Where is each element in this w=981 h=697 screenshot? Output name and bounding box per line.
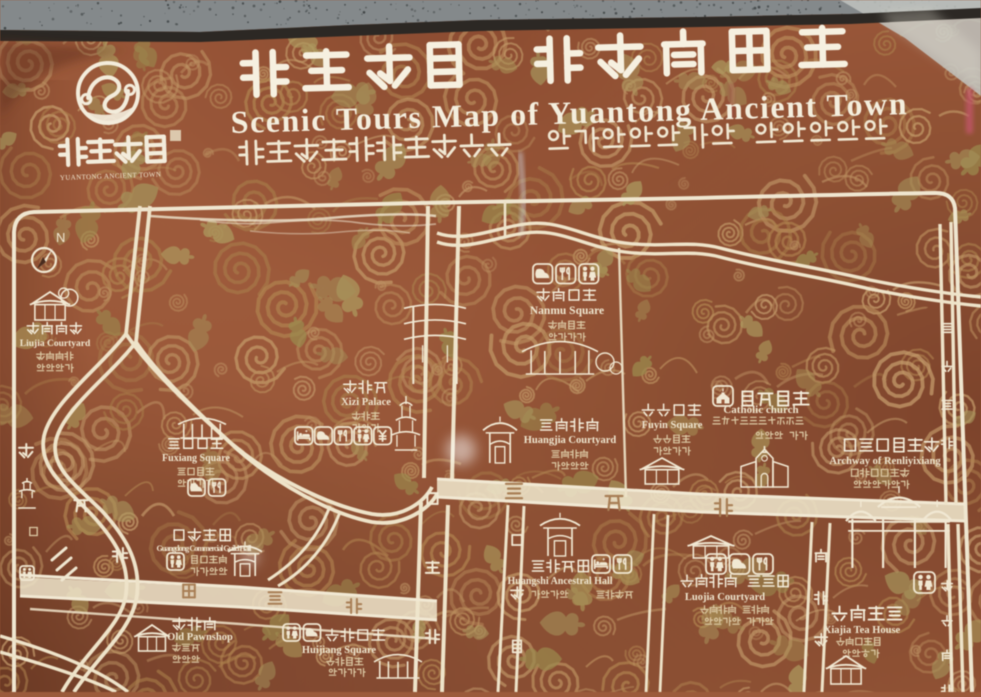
svg-text:Fuxiang Square: Fuxiang Square — [162, 453, 230, 464]
svg-text:Liujia Courtyard: Liujia Courtyard — [20, 339, 91, 349]
svg-text:Xizi Palace: Xizi Palace — [341, 397, 391, 408]
svg-text:Huangjia Courtyard: Huangjia Courtyard — [524, 435, 617, 446]
svg-text:Catholic church: Catholic church — [723, 404, 798, 416]
svg-text:Fuyin Square: Fuyin Square — [642, 420, 703, 431]
svg-text:Old Pawnshop: Old Pawnshop — [167, 632, 233, 643]
svg-text:Archway of Renliyixiang: Archway of Renliyixiang — [829, 456, 941, 467]
svg-text:Nanmu Square: Nanmu Square — [530, 305, 604, 317]
svg-text:Guangdong Commercial Guild Hal: Guangdong Commercial Guild Hall — [157, 544, 253, 553]
svg-text:Xiajia Tea House: Xiajia Tea House — [824, 625, 901, 636]
svg-text:Huijiang Square: Huijiang Square — [302, 645, 377, 656]
svg-text:Huangshi Ancestral Hall: Huangshi Ancestral Hall — [507, 576, 612, 587]
svg-text:N: N — [56, 230, 65, 245]
svg-text:Luojia Courtyard: Luojia Courtyard — [685, 592, 765, 603]
